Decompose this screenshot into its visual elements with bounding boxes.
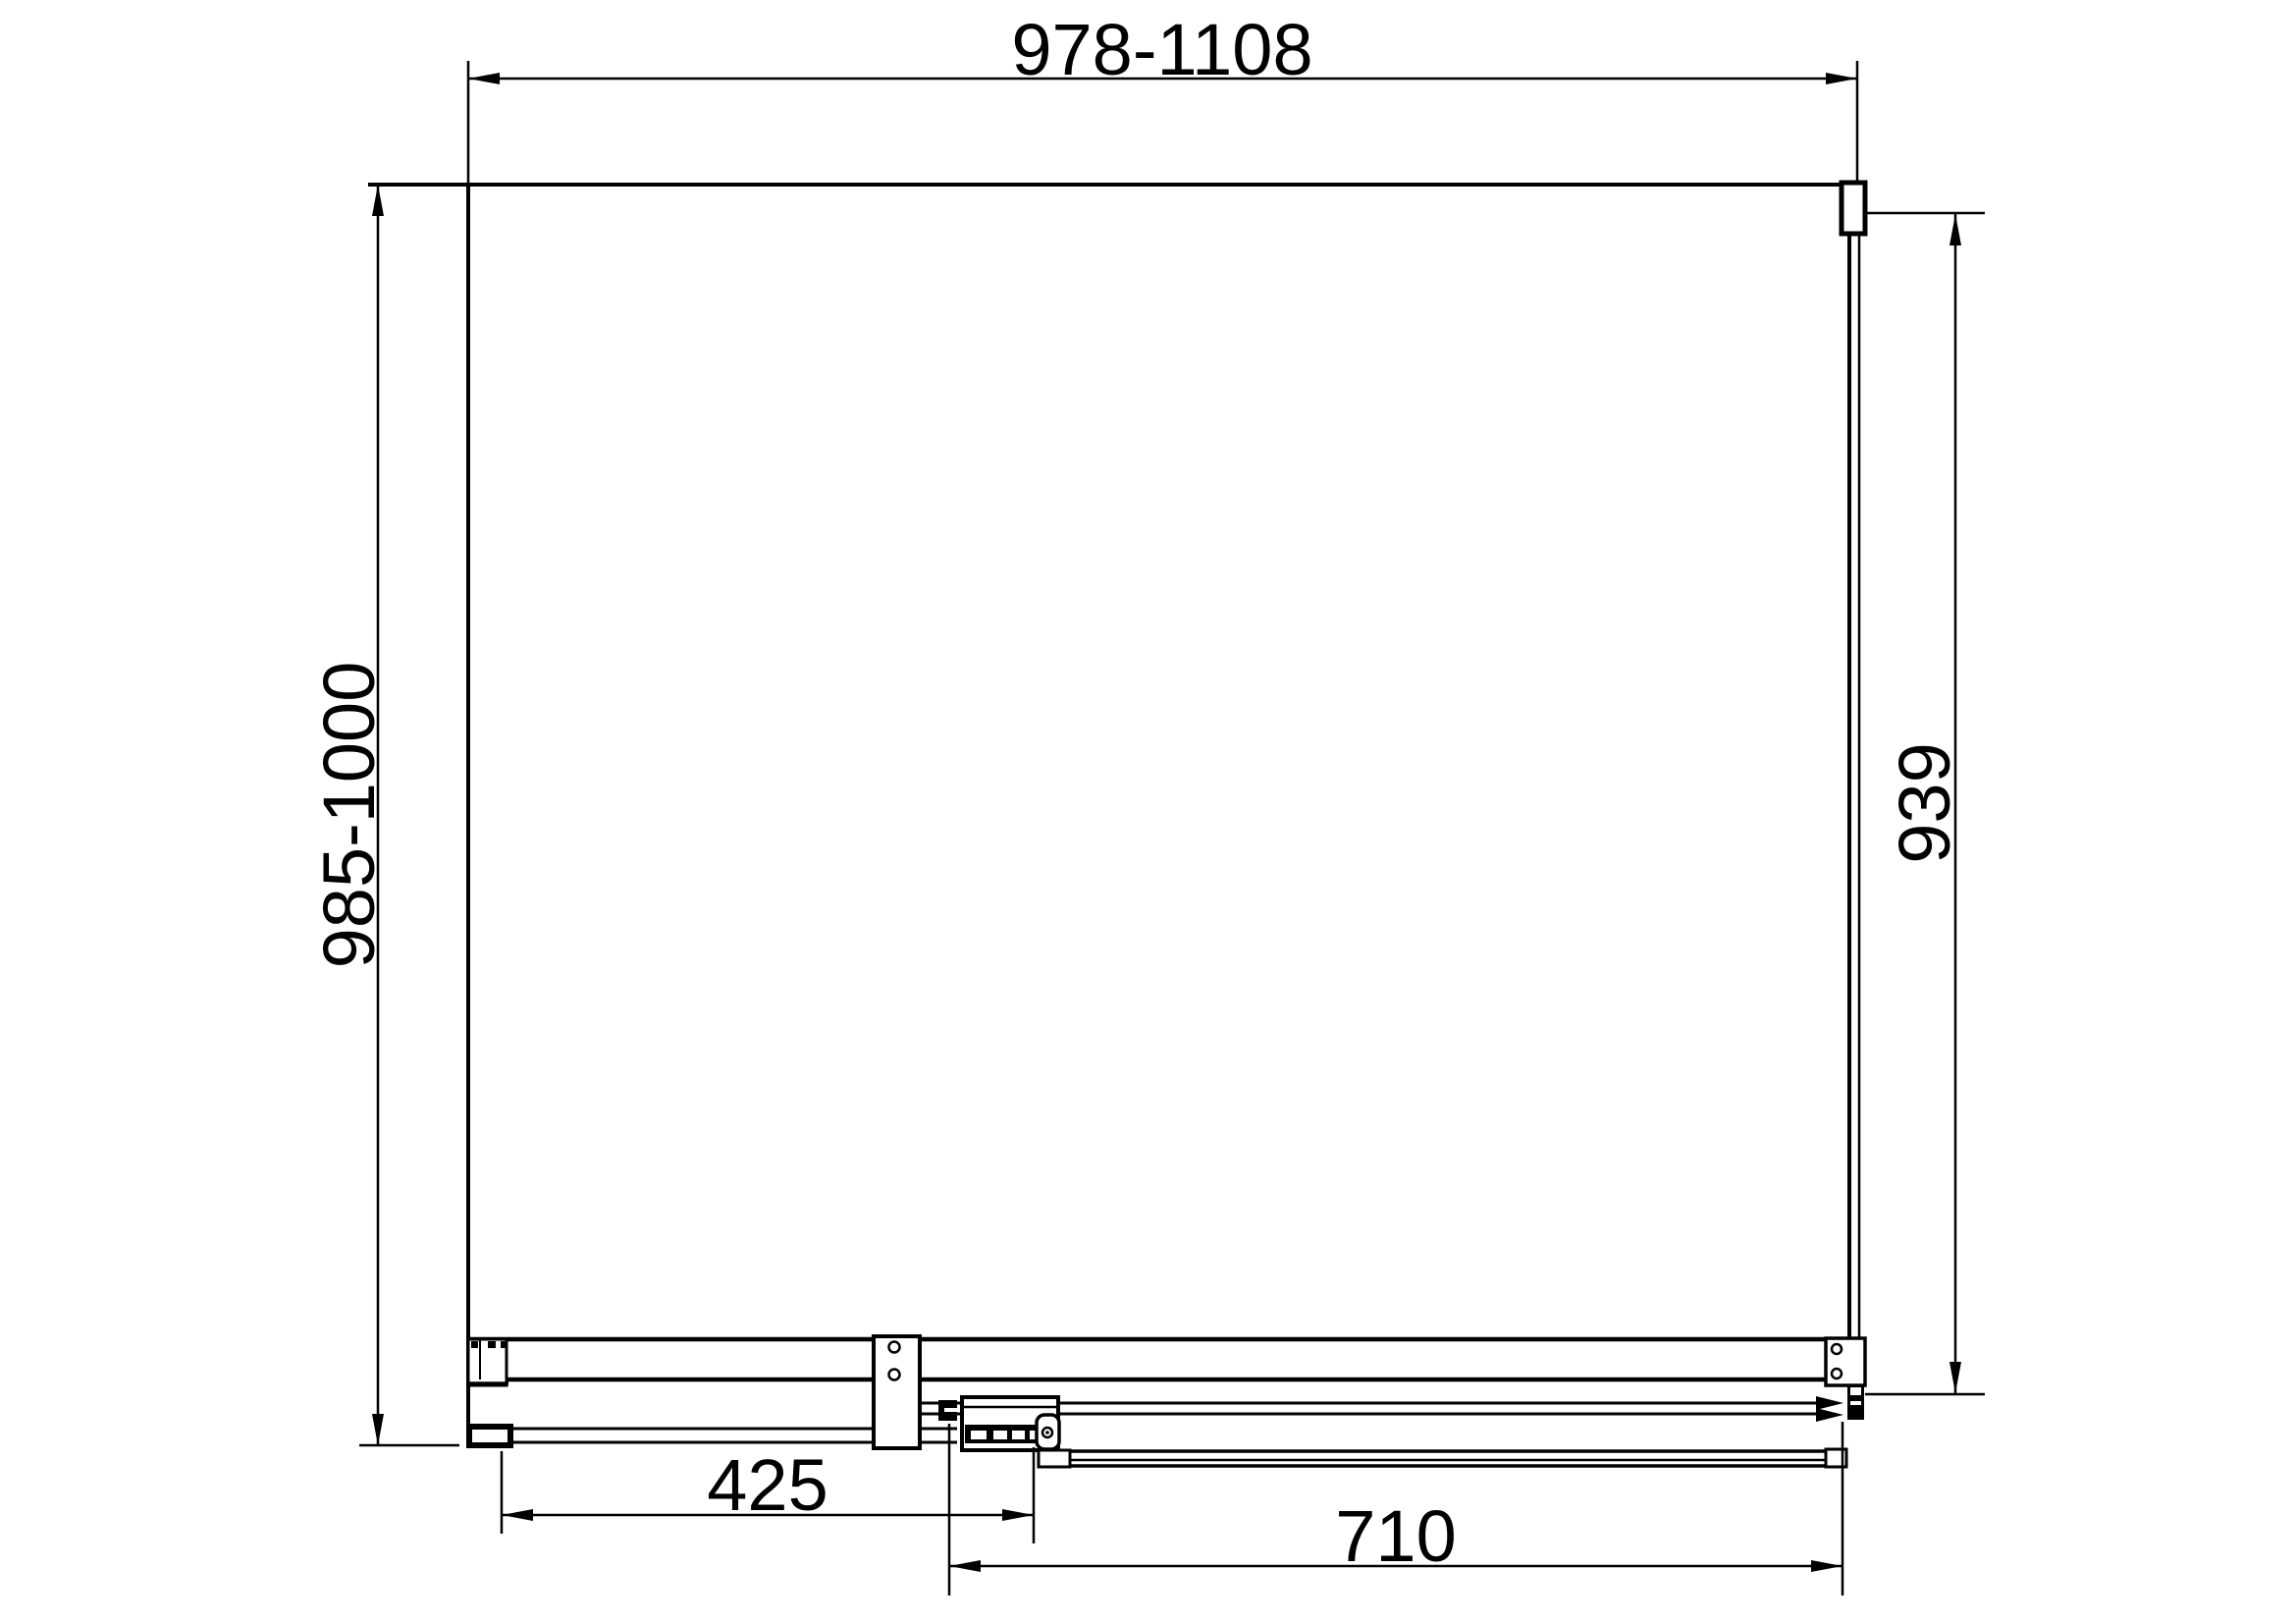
dimension-left-depth: 985-1000 [308, 185, 459, 1445]
arrowhead-top [372, 185, 384, 216]
right-profile-screw-top [1832, 1344, 1842, 1354]
hook-tooth-lower [940, 1412, 957, 1421]
technical-drawing-canvas: 978-1108 985-1000 939 425 710 [0, 0, 2296, 1623]
arrowhead-left [949, 1560, 981, 1572]
carriage-screw-center [1045, 1431, 1049, 1434]
bottom-right-wall-profile [1826, 1338, 1865, 1420]
door-stopper-upper [1816, 1396, 1843, 1410]
center-bracket [874, 1336, 920, 1448]
top-track-band [468, 1339, 1847, 1385]
right-profile-screw-bottom [1832, 1369, 1842, 1379]
profile-dash [471, 1341, 478, 1348]
fixed-glass-end-cap [469, 1427, 510, 1445]
dimension-sliding-door: 710 [949, 1422, 1842, 1596]
dimension-label-fixed-panel: 425 [707, 1444, 828, 1526]
anti-jump-hook [938, 1400, 957, 1421]
dimension-label-top-width: 978-1108 [1011, 9, 1312, 90]
roller-dash [1012, 1431, 1025, 1439]
connector-notch [1850, 1387, 1861, 1395]
arrowhead-left [502, 1509, 533, 1521]
top-right-wall-profile [1842, 183, 1865, 234]
enclosure-outline [368, 183, 1865, 1446]
arrowhead-left [468, 73, 500, 84]
rail-left-step [1039, 1450, 1070, 1467]
dimension-label-left-depth: 985-1000 [308, 662, 390, 969]
roller-dash [971, 1431, 987, 1439]
bottom-guide-rail [1039, 1449, 1846, 1467]
arrowhead-bottom [372, 1414, 384, 1445]
door-stopper-lower [1816, 1408, 1843, 1422]
right-profile-block [1826, 1338, 1865, 1385]
profile-dash [501, 1341, 506, 1348]
arrowhead-right [1826, 73, 1857, 84]
dimension-fixed-panel: 425 [502, 1444, 1034, 1543]
connector-slot [1850, 1401, 1861, 1405]
arrowhead-bottom [1949, 1362, 1961, 1393]
hook-tooth-upper [940, 1400, 957, 1408]
enclosure-plan-drawing: 978-1108 985-1000 939 425 710 [0, 0, 2296, 1623]
roller-carriage [962, 1397, 1059, 1450]
dimension-top-width: 978-1108 [468, 9, 1857, 183]
arrowhead-right [1002, 1509, 1034, 1521]
dimension-label-sliding-door: 710 [1335, 1495, 1456, 1577]
dimension-label-right-glass: 939 [1884, 742, 1965, 863]
arrowhead-right [1811, 1560, 1842, 1572]
bracket-screw-hole-bottom [889, 1370, 900, 1380]
arrowhead-top [1949, 214, 1961, 245]
profile-dash [488, 1341, 496, 1348]
roller-dash [993, 1431, 1007, 1439]
bracket-screw-hole-top [889, 1342, 900, 1353]
dimension-right-glass: 939 [1865, 213, 1985, 1394]
